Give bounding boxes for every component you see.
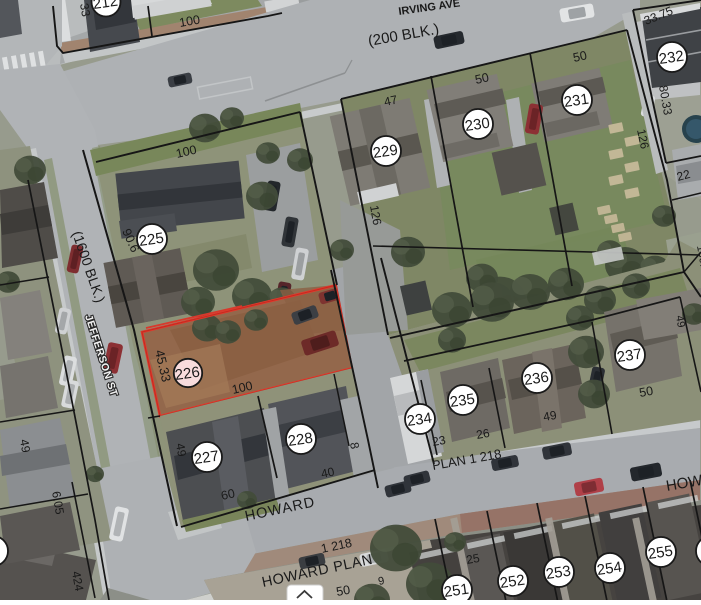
svg-text:251: 251 — [443, 581, 470, 600]
svg-text:232: 232 — [658, 48, 685, 68]
svg-text:25: 25 — [465, 551, 481, 567]
svg-text:49: 49 — [673, 314, 687, 328]
svg-text:229: 229 — [372, 142, 399, 162]
svg-text:234: 234 — [406, 410, 433, 430]
svg-text:23: 23 — [431, 433, 447, 449]
svg-text:253: 253 — [545, 563, 572, 583]
svg-text:228: 228 — [287, 430, 314, 450]
svg-text:225: 225 — [138, 230, 165, 250]
svg-text:235: 235 — [449, 391, 476, 411]
svg-text:49: 49 — [542, 408, 558, 424]
svg-text:252: 252 — [499, 572, 526, 592]
svg-text:50: 50 — [474, 70, 491, 87]
svg-text:26: 26 — [475, 426, 491, 442]
svg-text:231: 231 — [563, 91, 590, 111]
svg-text:230: 230 — [464, 115, 491, 135]
svg-text:254: 254 — [596, 559, 623, 579]
svg-text:50: 50 — [572, 48, 589, 65]
svg-text:50: 50 — [335, 583, 351, 599]
svg-text:237: 237 — [616, 346, 643, 366]
svg-text:226: 226 — [174, 364, 201, 384]
svg-text:236: 236 — [523, 369, 550, 389]
svg-text:49: 49 — [17, 438, 33, 454]
svg-text:227: 227 — [193, 448, 220, 468]
svg-text:49: 49 — [173, 442, 189, 458]
svg-text:255: 255 — [647, 543, 674, 563]
svg-text:50: 50 — [638, 384, 654, 400]
svg-text:60: 60 — [220, 486, 237, 503]
svg-text:33: 33 — [77, 2, 93, 18]
